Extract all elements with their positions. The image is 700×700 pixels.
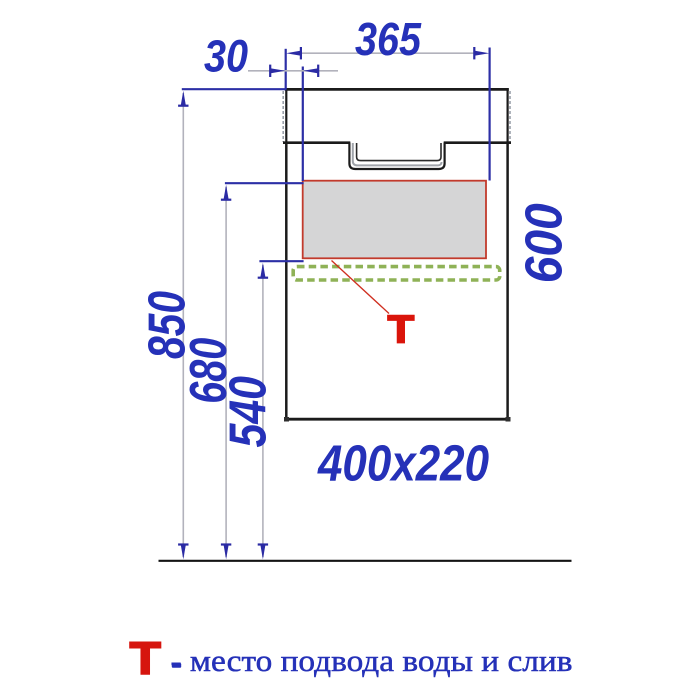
svg-text:600: 600 bbox=[516, 203, 574, 283]
svg-text:T: T bbox=[130, 633, 161, 684]
svg-text:540: 540 bbox=[220, 376, 278, 448]
svg-text:T: T bbox=[388, 308, 415, 351]
svg-text:400x220: 400x220 bbox=[317, 435, 489, 492]
svg-text:30: 30 bbox=[204, 30, 248, 81]
svg-text:365: 365 bbox=[355, 13, 422, 65]
svg-text:- место подвода воды и слив: - место подвода воды и слив bbox=[171, 643, 573, 678]
